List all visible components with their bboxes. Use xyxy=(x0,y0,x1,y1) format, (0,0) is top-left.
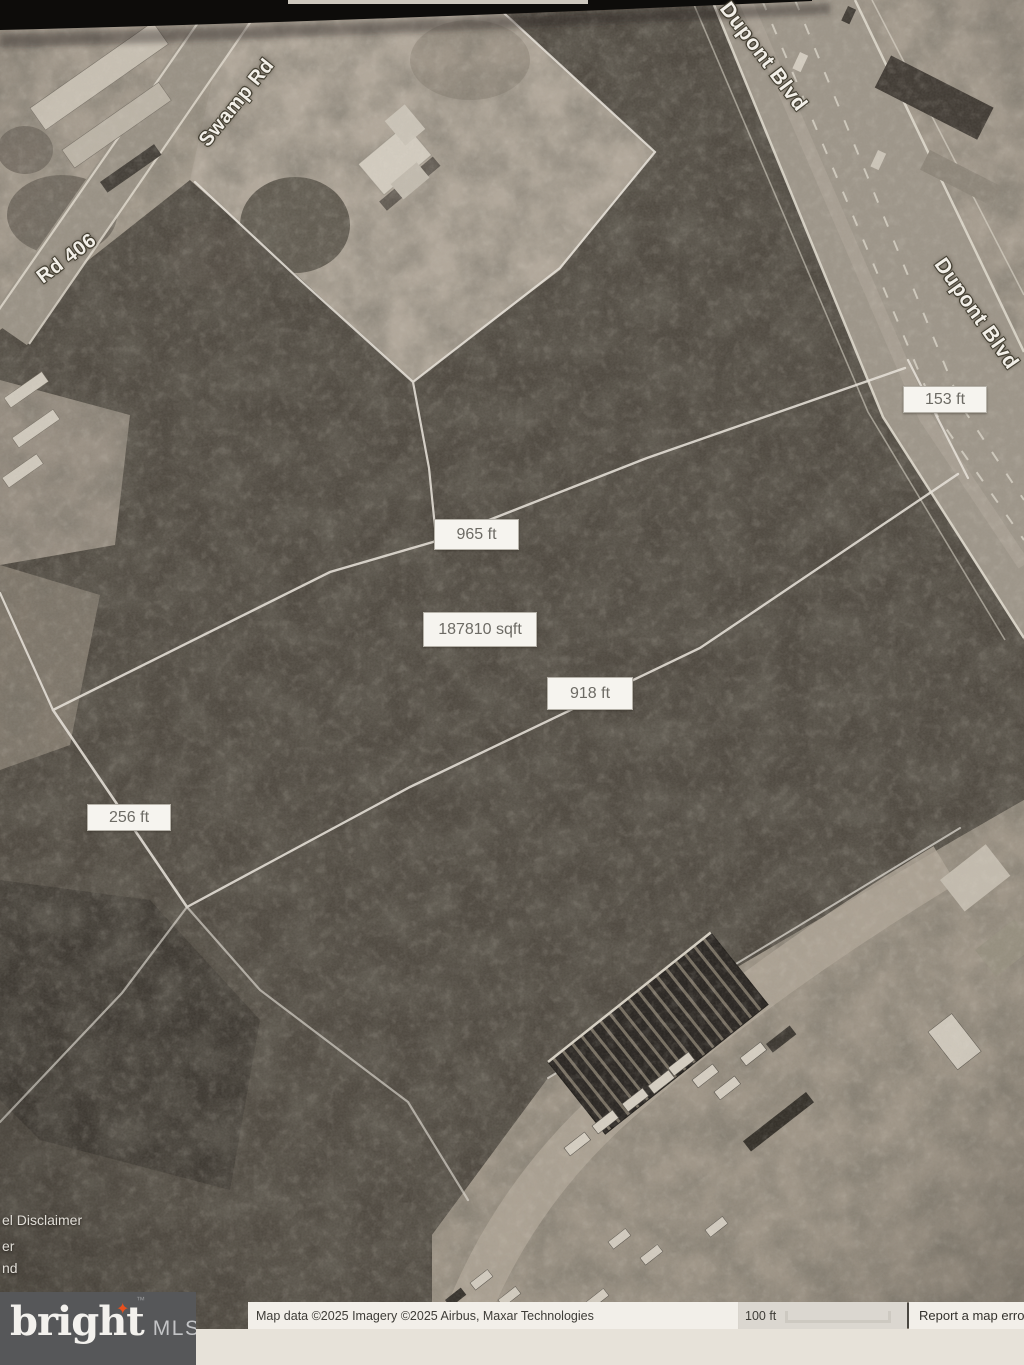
measurement-label-256ft: 256 ft xyxy=(87,804,171,831)
partial-text-legend: nd xyxy=(2,1260,18,1276)
aerial-imagery xyxy=(0,0,1024,1365)
scale-label: 100 ft xyxy=(745,1309,776,1323)
logo-star-icon: ✦ xyxy=(116,1299,129,1319)
scale-bar-icon xyxy=(785,1311,891,1323)
scanned-map-photo: Swamp Rd Rd 406 Dupont Blvd Dupont Blvd … xyxy=(0,0,1024,1365)
partial-text-line2: er xyxy=(2,1238,14,1254)
paper-margin xyxy=(196,1329,1024,1365)
vignette xyxy=(0,0,1024,1365)
map-data-attribution: Map data ©2025 Imagery ©2025 Airbus, Max… xyxy=(248,1302,739,1329)
logo-trademark: ™ xyxy=(136,1295,145,1305)
report-map-error-link[interactable]: Report a map erro xyxy=(909,1302,1024,1329)
partial-text-disclaimer: el Disclaimer xyxy=(2,1212,82,1228)
measurement-label-area-sqft: 187810 sqft xyxy=(423,612,537,647)
map-scale-control: 100 ft xyxy=(739,1302,907,1329)
map-attribution-bar: Map data ©2025 Imagery ©2025 Airbus, Max… xyxy=(248,1302,1024,1329)
measurement-label-918ft: 918 ft xyxy=(547,677,633,710)
logo-suffix: MLS xyxy=(153,1317,196,1341)
bright-mls-logo: bright MLS ✦ ™ xyxy=(0,1292,196,1365)
measurement-label-153ft: 153 ft xyxy=(903,386,987,413)
measurement-label-965ft: 965 ft xyxy=(434,519,519,550)
